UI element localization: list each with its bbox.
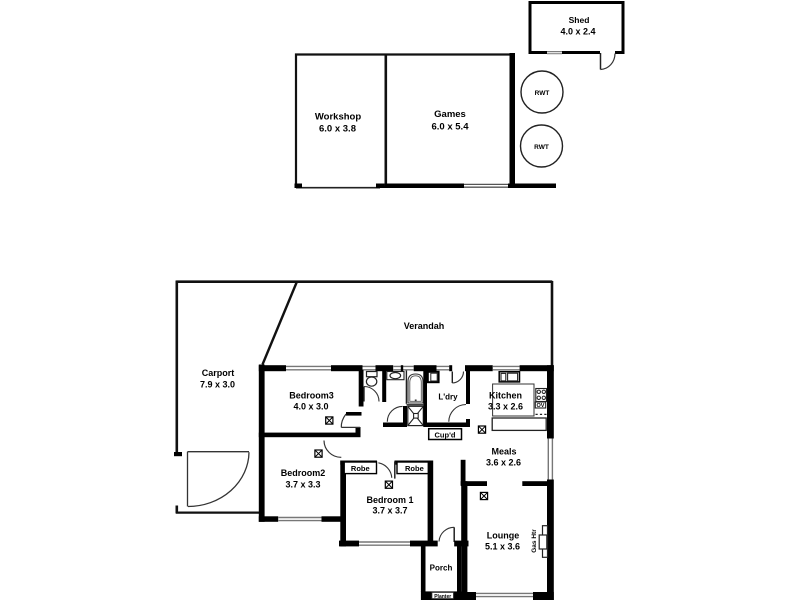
svg-text:Verandah: Verandah [404, 321, 445, 331]
svg-text:3.3 x 2.6: 3.3 x 2.6 [488, 402, 523, 412]
svg-text:Workshop: Workshop [315, 112, 361, 123]
svg-text:OV: OV [537, 403, 545, 409]
svg-text:3.6 x 2.6: 3.6 x 2.6 [486, 458, 521, 468]
svg-text:Shed: Shed [569, 15, 590, 25]
svg-text:Bedroom3: Bedroom3 [289, 391, 334, 401]
svg-text:5.1 x 3.6: 5.1 x 3.6 [485, 542, 520, 552]
svg-text:4.0 x 2.4: 4.0 x 2.4 [560, 27, 595, 37]
svg-text:RWT: RWT [535, 90, 550, 97]
svg-text:Lounge: Lounge [487, 530, 520, 540]
svg-text:Carport: Carport [202, 368, 235, 378]
svg-text:Games: Games [434, 109, 466, 120]
svg-text:Cup'd: Cup'd [435, 430, 456, 439]
svg-text:L'dry: L'dry [438, 393, 458, 402]
svg-text:Porch: Porch [430, 564, 453, 573]
svg-text:6.0 x 5.4: 6.0 x 5.4 [432, 122, 470, 133]
svg-text:Bedroom 1: Bedroom 1 [366, 495, 413, 505]
svg-text:3.7 x 3.3: 3.7 x 3.3 [285, 479, 320, 489]
svg-text:Robe: Robe [405, 464, 424, 473]
svg-text:7.9 x 3.0: 7.9 x 3.0 [200, 380, 235, 390]
svg-text:Robe: Robe [351, 464, 370, 473]
svg-text:Planter: Planter [434, 594, 451, 600]
svg-text:Bedroom2: Bedroom2 [281, 468, 326, 478]
svg-text:RWT: RWT [534, 144, 549, 151]
svg-text:Kitchen: Kitchen [489, 390, 522, 400]
svg-text:Meals: Meals [491, 446, 516, 456]
svg-text:6.0 x 3.8: 6.0 x 3.8 [319, 124, 356, 135]
svg-text:4.0 x 3.0: 4.0 x 3.0 [293, 402, 328, 412]
svg-text:Gas Htr: Gas Htr [531, 529, 538, 553]
svg-text:3.7 x 3.7: 3.7 x 3.7 [372, 505, 407, 515]
